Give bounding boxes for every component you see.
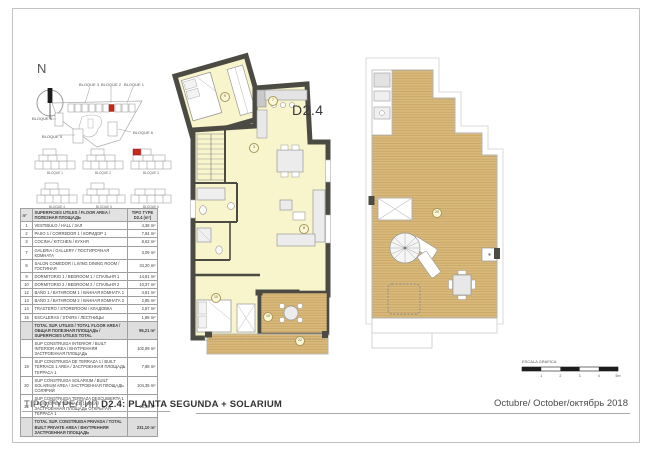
table-cell-no: 15	[21, 313, 33, 321]
room-number-marker: 20	[432, 208, 442, 218]
room-number-marker: 8	[299, 224, 309, 234]
table-cell-desc: SUP CONSTRUIDA DE TERRAZA 1 / BUILT TERR…	[33, 358, 128, 376]
table-row: 9DORMITORIO 1 / BEDROOM 1 / СПАЛЬНЯ 114,…	[21, 272, 158, 280]
table-cell-val: 2,57 m²	[128, 305, 158, 313]
sheet-title-main: D2.4: PLANTA SEGUNDA + SOLARIUM	[101, 399, 282, 410]
room-number-marker: 19	[263, 312, 273, 322]
site-label-bloque5: BLOQUE 5	[42, 134, 63, 139]
elevation-bloque-1	[35, 149, 75, 169]
elevation-label-1: BLOQUE 1	[47, 171, 63, 175]
table-cell-val: 95,21 m²	[128, 321, 158, 339]
table-row: SUP CONSTRUIDA INTERIOR / BUILT INTERIOR…	[21, 339, 158, 357]
table-cell-no: 2	[21, 230, 33, 238]
room-number-marker: 7	[268, 96, 278, 106]
table-cell-val: 7,84 m²	[128, 230, 158, 238]
open-terrace	[207, 334, 328, 354]
sheet-title-prefix: TIPO/TYPE/ТИП	[24, 399, 98, 410]
table-cell-no	[21, 321, 33, 339]
site-label-bloque4: BLOQUE 4	[32, 116, 53, 121]
table-row: 19SUP CONSTRUIDA DE TERRAZA 1 / BUILT TE…	[21, 358, 158, 376]
highlighted-unit-elevation	[133, 149, 141, 155]
elevation-label-3: BLOQUE 3	[143, 171, 159, 175]
scale-tick-4: 4	[598, 374, 600, 378]
table-cell-desc: COCINA / KITCHEN / КУХНЯ	[33, 238, 128, 246]
table-cell-desc: SUP CONSTRUIDA INTERIOR / BUILT INTERIOR…	[33, 339, 128, 357]
table-cell-val: 14,81 m²	[128, 272, 158, 280]
titleblock-rule	[196, 413, 630, 414]
site-label-bloque1: BLOQUE 1	[124, 82, 145, 87]
table-row: 15ESCALERAS / STAIRS / ЛЕСТНИЦЫ1,85 m²	[21, 313, 158, 321]
site-label-bloque3: BLOQUE 3	[79, 82, 100, 87]
table-cell-val: 3,09 m²	[128, 246, 158, 259]
table-row: TOTAL SUP. CONSTRUIDA PRIVADA / TOTAL BU…	[21, 418, 158, 436]
scale-tick-3: 3	[579, 374, 581, 378]
table-cell-no: 20	[21, 376, 33, 394]
table-row: 20SUP CONSTRUIDA SOLARIUM / BUILT SOLARI…	[21, 376, 158, 394]
table-row: 10DORMITORIO 2 / BEDROOM 2 / СПАЛЬНЯ 210…	[21, 281, 158, 289]
table-cell-desc: TOTAL SUP. UTILES / TOTAL FLOOR AREA / О…	[33, 321, 128, 339]
elevation-bloque-2	[83, 149, 123, 169]
elevation-bloque-4	[37, 183, 77, 203]
table-cell-val: 4,38 m²	[128, 222, 158, 230]
solarium-plan	[358, 52, 528, 362]
elevation-bloque-3	[131, 149, 171, 169]
room-number-marker: 22	[295, 336, 305, 346]
table-cell-desc: DORMITORIO 1 / BEDROOM 1 / СПАЛЬНЯ 1	[33, 272, 128, 280]
title-underline	[22, 411, 170, 412]
scale-tick-1: 1	[540, 374, 542, 378]
kitchen-cabinet	[257, 110, 267, 138]
table-cell-no: 3	[21, 238, 33, 246]
table-cell-val: 1,85 m²	[128, 313, 158, 321]
highlighted-unit	[109, 105, 114, 112]
table-cell-no: 9	[21, 272, 33, 280]
solarium-kitchenette	[372, 70, 392, 135]
col-header-desc: SUPERFICIES UTILES / FLOOR AREA / ПОЛЕЗН…	[33, 209, 128, 222]
table-cell-val: 8,62 m²	[128, 238, 158, 246]
table-cell-no	[21, 339, 33, 357]
table-row: 7GALERIA / GALLERY / ПОСТИРОЧНАЯ КОМНАТА…	[21, 246, 158, 259]
table-cell-val: 2,85 m²	[128, 297, 158, 305]
stair-opening	[378, 198, 412, 220]
table-cell-desc: ESCALERAS / STAIRS / ЛЕСТНИЦЫ	[33, 313, 128, 321]
table-row: 14TRASTERO / STOREROOM / КЛАДОВКА2,57 m²	[21, 305, 158, 313]
table-cell-no	[21, 418, 33, 436]
elevation-bloque-6	[131, 189, 171, 203]
scale-tick-5: 5m	[616, 374, 621, 378]
table-row: 12BAÑO 1 / BATHROOM 1 / ВАННАЯ КОМНАТА 1…	[21, 289, 158, 297]
table-cell-val: 4,81 m²	[128, 289, 158, 297]
table-cell-val: 102,99 m²	[128, 339, 158, 357]
table-cell-no: 12	[21, 289, 33, 297]
col-header-value: TIPO TYPE D2.4 (m²)	[128, 209, 158, 222]
block-elevations: BLOQUE 1 BLOQUE 2 BLOQUE 3 BLOQUE 4 BLOQ…	[33, 147, 178, 217]
main-floor-plan	[185, 50, 335, 365]
scale-label: ESCALA GRAFICA	[522, 359, 557, 364]
table-row: 13BAÑO 2 / BATHROOM 2 / ВАННАЯ КОМНАТА 2…	[21, 297, 158, 305]
table-cell-desc: SALON COMEDOR / LIVING DINING ROOM / ГОС…	[33, 259, 128, 272]
sheet: N BLOQUE 3 BLOQUE 2 BLOQU	[0, 0, 650, 450]
table-row: 1VESTIBULO / HALL / ЗАЛ4,38 m²	[21, 222, 158, 230]
table-cell-desc: DORMITORIO 2 / BEDROOM 2 / СПАЛЬНЯ 2	[33, 281, 128, 289]
table-cell-val: 7,88 m²	[128, 358, 158, 376]
table-cell-val: 10,37 m²	[128, 281, 158, 289]
plan-unit-label: D2.4	[292, 102, 324, 118]
room-number-marker: 9	[220, 92, 230, 102]
laundry-unit	[257, 90, 266, 107]
table-cell-desc: VESTIBULO / HALL / ЗАЛ	[33, 222, 128, 230]
table-cell-no: 7	[21, 246, 33, 259]
table-cell-val: 104,35 m²	[128, 376, 158, 394]
scale-bar: ESCALA GRAFICA 1 2 3 4 5m	[520, 358, 632, 384]
sheet-date: Octubre/ October/октябрь 2018	[420, 398, 628, 409]
table-cell-no: 14	[21, 305, 33, 313]
bedroom-2	[197, 300, 255, 332]
elevation-label-2: BLOQUE 2	[95, 171, 111, 175]
table-header-row: nº SUPERFICIES UTILES / FLOOR AREA / ПОЛ…	[21, 209, 158, 222]
elevation-bloque-5	[83, 183, 125, 203]
sheet-title: TIPO/TYPE/ТИП D2.4: PLANTA SEGUNDA + SOL…	[24, 399, 282, 410]
table-cell-no: 13	[21, 297, 33, 305]
table-cell-desc: GALERIA / GALLERY / ПОСТИРОЧНАЯ КОМНАТА	[33, 246, 128, 259]
table-cell-desc: TRASTERO / STOREROOM / КЛАДОВКА	[33, 305, 128, 313]
table-cell-no: 19	[21, 358, 33, 376]
table-cell-desc: SUP CONSTRUIDA SOLARIUM / BUILT SOLARIUM…	[33, 376, 128, 394]
col-header-no: nº	[21, 209, 33, 222]
table-row: 8SALON COMEDOR / LIVING DINING ROOM / ГО…	[21, 259, 158, 272]
table-cell-desc: BAÑO 1 / BATHROOM 1 / ВАННАЯ КОМНАТА 1	[33, 289, 128, 297]
room-number-marker: 3	[249, 143, 259, 153]
table-row: 3COCINA / KITCHEN / КУХНЯ8,62 m²	[21, 238, 158, 246]
table-row: TOTAL SUP. UTILES / TOTAL FLOOR AREA / О…	[21, 321, 158, 339]
scale-tick-2: 2	[559, 374, 561, 378]
table-cell-desc: PASO 1 / CORREDOR 1 / КОРИДОР 1	[33, 230, 128, 238]
north-label: N	[37, 61, 57, 76]
table-cell-val: 34,20 m²	[128, 259, 158, 272]
table-cell-val: 231,10 m²	[128, 418, 158, 436]
table-cell-no: 1	[21, 222, 33, 230]
table-cell-desc: BAÑO 2 / BATHROOM 2 / ВАННАЯ КОМНАТА 2	[33, 297, 128, 305]
table-cell-desc: TOTAL SUP. CONSTRUIDA PRIVADA / TOTAL BU…	[33, 418, 128, 436]
site-label-bloque2: BLOQUE 2	[101, 82, 122, 87]
table-row: 2PASO 1 / CORREDOR 1 / КОРИДОР 17,84 m²	[21, 230, 158, 238]
site-label-bloque6: BLOQUE 6	[133, 130, 154, 135]
table-cell-no: 8	[21, 259, 33, 272]
dining-table	[277, 145, 303, 177]
table-cell-no: 10	[21, 281, 33, 289]
room-number-marker: 10	[211, 293, 221, 303]
